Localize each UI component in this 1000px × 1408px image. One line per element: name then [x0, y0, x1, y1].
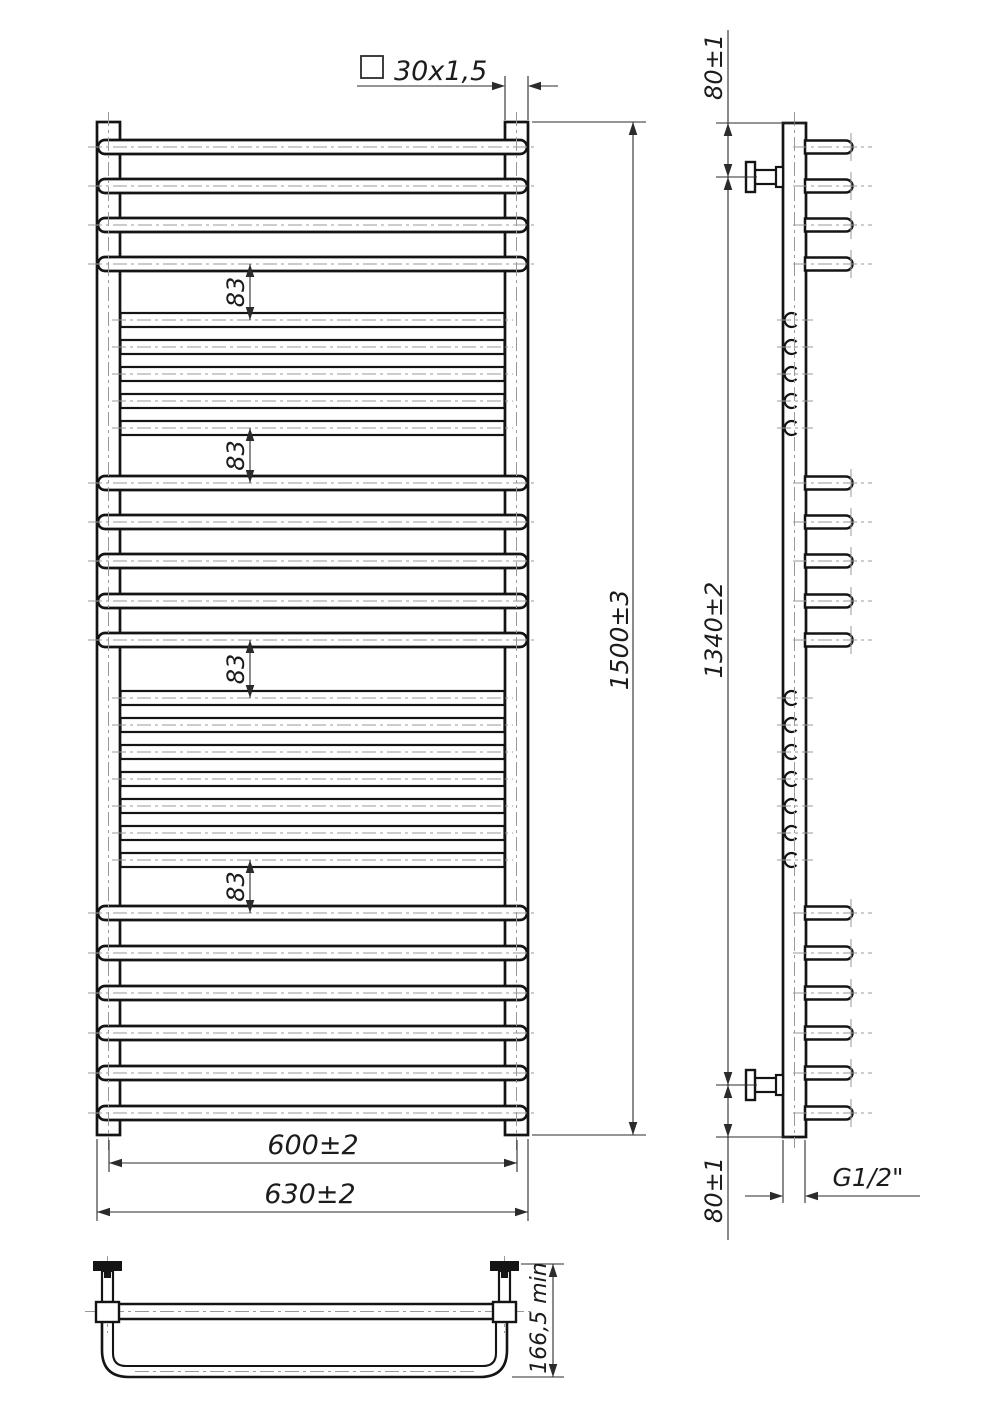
dimension-arrow	[724, 1085, 733, 1098]
wide-rung	[98, 906, 527, 920]
dimension-arrow	[724, 123, 733, 136]
bottom-bracket-plate	[93, 1261, 122, 1271]
dimension-arrow	[515, 1208, 528, 1217]
towel-rail-technical-drawing: 30x1,51500±383838383600±2630±280±11340±2…	[0, 0, 1000, 1408]
wide-rung	[98, 633, 527, 647]
dimension-arrow	[724, 1072, 733, 1085]
wall-bracket-flange	[776, 167, 783, 187]
bottom-bracket-screw	[501, 1271, 508, 1278]
bottom-bracket-screw	[104, 1271, 111, 1278]
bottom-post-node	[493, 1302, 516, 1322]
dimension-arrow	[724, 177, 733, 190]
dim-label-gap: 83	[222, 654, 250, 685]
wide-rung	[98, 946, 527, 960]
dimension-arrow	[724, 1124, 733, 1137]
wide-rung	[98, 257, 527, 271]
dimension-arrow	[109, 1159, 122, 1168]
dim-label-gap: 83	[222, 440, 250, 471]
bottom-u-tube-outer	[102, 1322, 507, 1377]
dimension-arrow	[528, 82, 541, 91]
wide-rung	[98, 179, 527, 193]
dim-label-axis-width: 600±2	[267, 1130, 358, 1161]
dim-label-depth: 166,5 min	[527, 1262, 552, 1373]
bottom-post-node	[96, 1302, 119, 1322]
wide-rung	[98, 476, 527, 490]
dim-label-overall-width: 630±2	[264, 1179, 355, 1210]
dim-label-bottom-offset: 80±1	[700, 1157, 728, 1223]
dim-label-thread: G1/2"	[832, 1163, 903, 1192]
wide-rung	[98, 140, 527, 154]
wide-rung	[98, 218, 527, 232]
dim-label-gap: 83	[222, 277, 250, 308]
dim-label-gap: 83	[222, 871, 250, 902]
wide-rung	[98, 1106, 527, 1120]
wide-rung	[98, 986, 527, 1000]
wide-rung	[98, 1066, 527, 1080]
dimension-arrow	[724, 164, 733, 177]
bottom-u-tube-inner	[113, 1322, 496, 1366]
drawing-canvas: 30x1,51500±383838383600±2630±280±11340±2…	[0, 0, 1000, 1408]
dimension-arrow	[805, 1192, 818, 1201]
wide-rung	[98, 554, 527, 568]
dimension-arrow	[629, 122, 638, 135]
dim-label-profile: 30x1,5	[394, 56, 487, 87]
dim-label-top-offset: 80±1	[700, 34, 728, 100]
dimension-arrow	[492, 82, 505, 91]
wide-rung	[98, 1026, 527, 1040]
dim-label-height: 1500±3	[605, 590, 634, 690]
dimension-arrow	[97, 1208, 110, 1217]
wall-bracket-flange	[776, 1075, 783, 1095]
bottom-bracket-plate	[490, 1261, 519, 1271]
square-profile-symbol	[361, 56, 383, 78]
dimension-arrow	[504, 1159, 517, 1168]
dimension-arrow	[770, 1192, 783, 1201]
dimension-arrow	[629, 1122, 638, 1135]
wide-rung	[98, 594, 527, 608]
dim-label-axis-span: 1340±2	[700, 582, 728, 678]
wide-rung	[98, 515, 527, 529]
